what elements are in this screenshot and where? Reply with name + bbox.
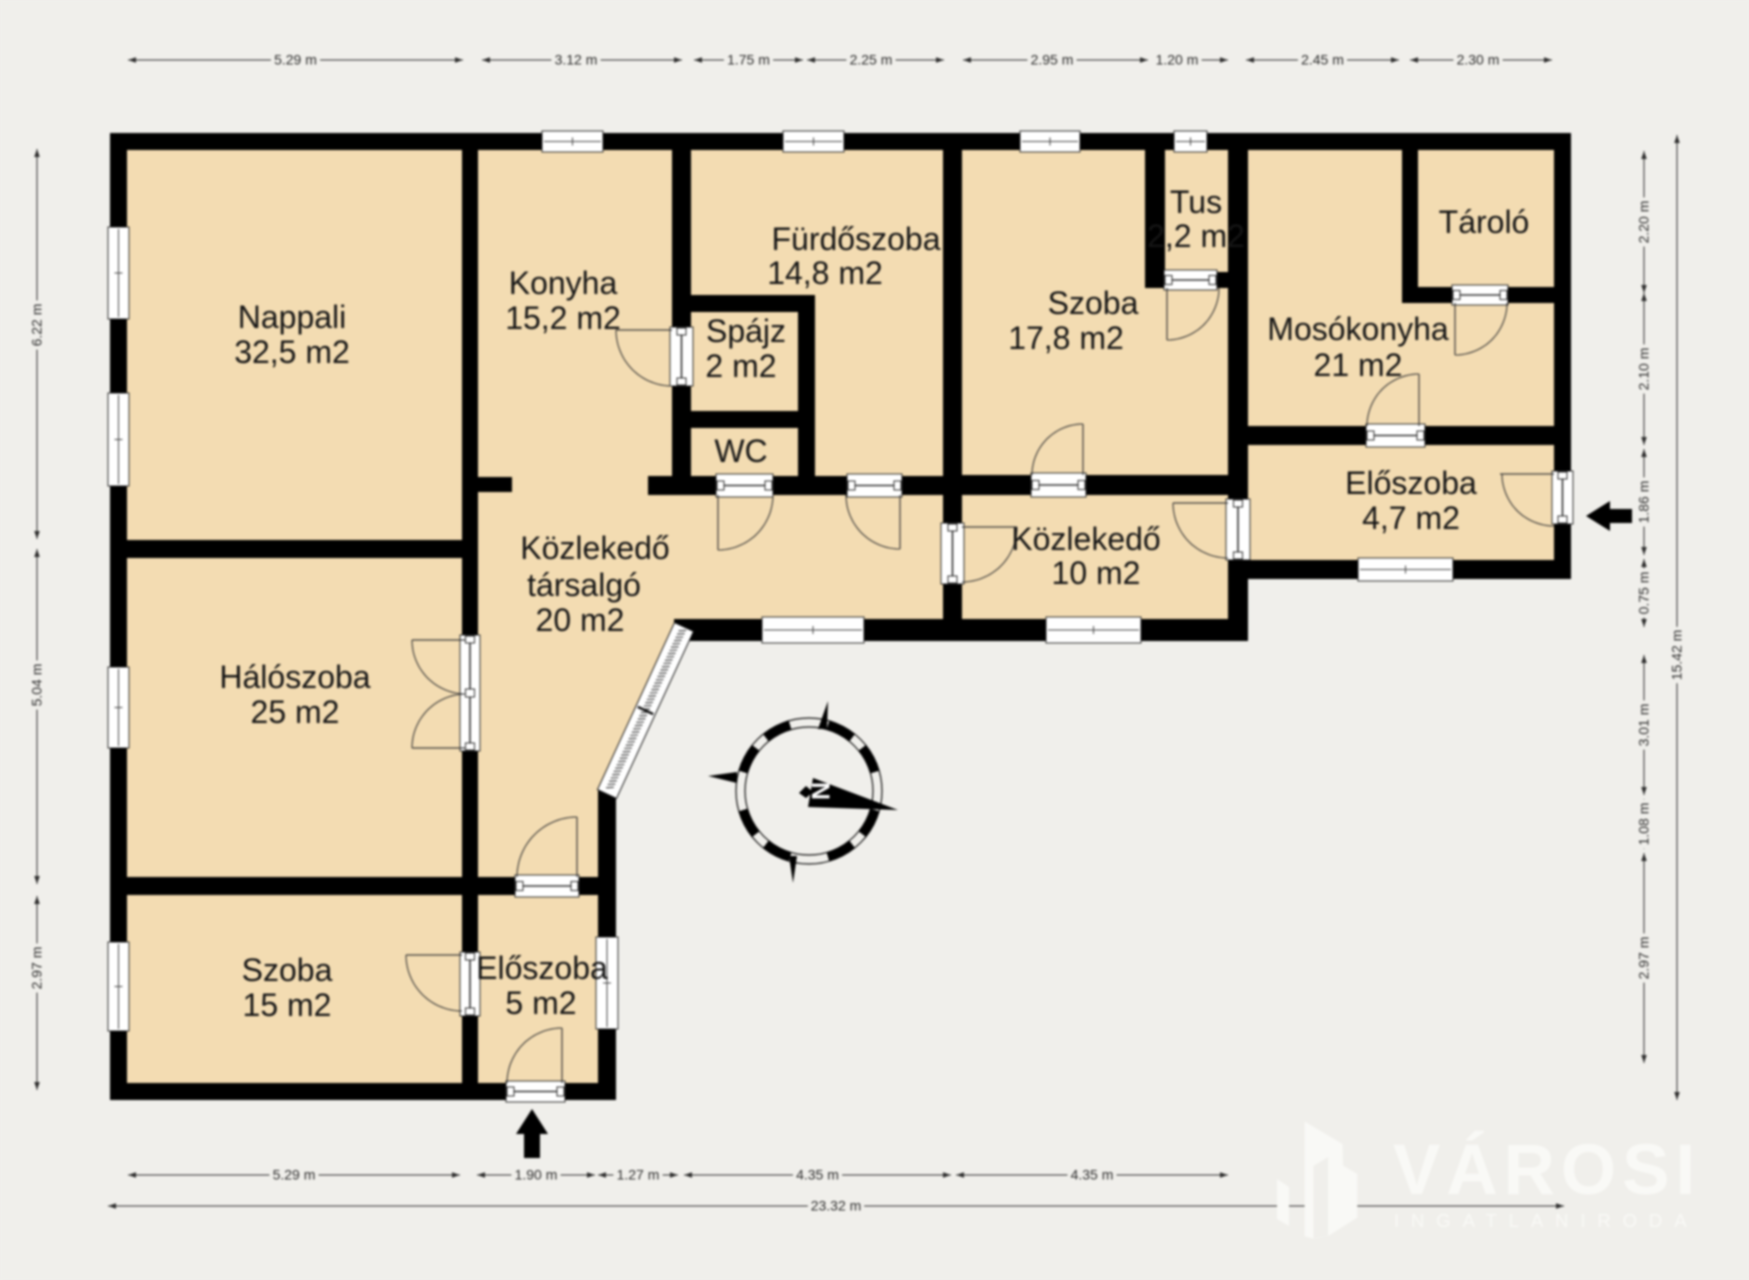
svg-text:2 m2: 2 m2: [705, 348, 776, 384]
svg-text:4.35 m: 4.35 m: [1071, 1167, 1114, 1183]
svg-text:Közlekedő: Közlekedő: [520, 530, 669, 566]
svg-text:20 m2: 20 m2: [536, 602, 625, 638]
svg-text:15 m2: 15 m2: [243, 987, 332, 1023]
svg-text:5.04 m: 5.04 m: [29, 664, 45, 707]
svg-text:WC: WC: [714, 433, 767, 469]
svg-text:Közlekedő: Közlekedő: [1011, 521, 1160, 557]
svg-text:3.12 m: 3.12 m: [555, 52, 598, 68]
svg-text:0.75 m: 0.75 m: [1636, 572, 1652, 615]
svg-text:Tus: Tus: [1170, 184, 1222, 220]
svg-text:2.30 m: 2.30 m: [1457, 52, 1500, 68]
svg-text:1.75 m: 1.75 m: [727, 52, 770, 68]
svg-text:23.32 m: 23.32 m: [811, 1198, 862, 1214]
svg-text:1.20 m: 1.20 m: [1156, 52, 1199, 68]
svg-text:4.35 m: 4.35 m: [796, 1167, 839, 1183]
svg-text:5 m2: 5 m2: [505, 985, 576, 1021]
svg-text:2.25 m: 2.25 m: [850, 52, 893, 68]
svg-text:1.27 m: 1.27 m: [617, 1167, 660, 1183]
svg-text:15,2 m2: 15,2 m2: [505, 300, 621, 336]
svg-text:15.42 m: 15.42 m: [1669, 630, 1685, 681]
svg-text:2.97 m: 2.97 m: [29, 947, 45, 990]
svg-text:Konyha: Konyha: [509, 265, 618, 301]
svg-text:2.97 m: 2.97 m: [1636, 937, 1652, 980]
svg-text:1.08 m: 1.08 m: [1636, 803, 1652, 846]
svg-text:2.10 m: 2.10 m: [1636, 348, 1652, 391]
svg-text:N: N: [806, 782, 834, 800]
svg-text:1.90 m: 1.90 m: [515, 1167, 558, 1183]
svg-text:6.22 m: 6.22 m: [29, 304, 45, 347]
svg-text:Hálószoba: Hálószoba: [219, 659, 370, 695]
svg-text:társalgó: társalgó: [527, 567, 641, 603]
svg-text:2.95 m: 2.95 m: [1031, 52, 1074, 68]
svg-text:14,8 m2: 14,8 m2: [767, 255, 883, 291]
svg-text:VÁROSI: VÁROSI: [1393, 1131, 1701, 1210]
svg-text:5.29 m: 5.29 m: [273, 1167, 316, 1183]
svg-text:17,8 m2: 17,8 m2: [1008, 320, 1124, 356]
svg-text:5.29 m: 5.29 m: [274, 52, 317, 68]
svg-text:4,7 m2: 4,7 m2: [1362, 500, 1460, 536]
svg-text:Fürdőszoba: Fürdőszoba: [772, 221, 941, 257]
svg-text:25 m2: 25 m2: [251, 694, 340, 730]
svg-text:21 m2: 21 m2: [1314, 347, 1403, 383]
svg-text:10 m2: 10 m2: [1052, 555, 1141, 591]
svg-text:2.20 m: 2.20 m: [1636, 201, 1652, 244]
svg-text:2,2 m2: 2,2 m2: [1147, 218, 1245, 254]
svg-text:Szoba: Szoba: [1048, 285, 1139, 321]
svg-text:Szoba: Szoba: [242, 952, 333, 988]
svg-text:INGATLANIRODA: INGATLANIRODA: [1394, 1210, 1698, 1231]
svg-text:Nappali: Nappali: [238, 299, 347, 335]
svg-text:Spájz: Spájz: [706, 313, 786, 349]
svg-text:2.45 m: 2.45 m: [1301, 52, 1344, 68]
svg-text:1.86 m: 1.86 m: [1636, 481, 1652, 524]
svg-text:32,5 m2: 32,5 m2: [234, 334, 350, 370]
svg-text:Tároló: Tároló: [1439, 204, 1530, 240]
svg-text:Előszoba: Előszoba: [1345, 465, 1477, 501]
svg-text:3.01 m: 3.01 m: [1636, 704, 1652, 747]
svg-text:Előszoba: Előszoba: [476, 950, 608, 986]
svg-text:Mosókonyha: Mosókonyha: [1267, 311, 1449, 347]
